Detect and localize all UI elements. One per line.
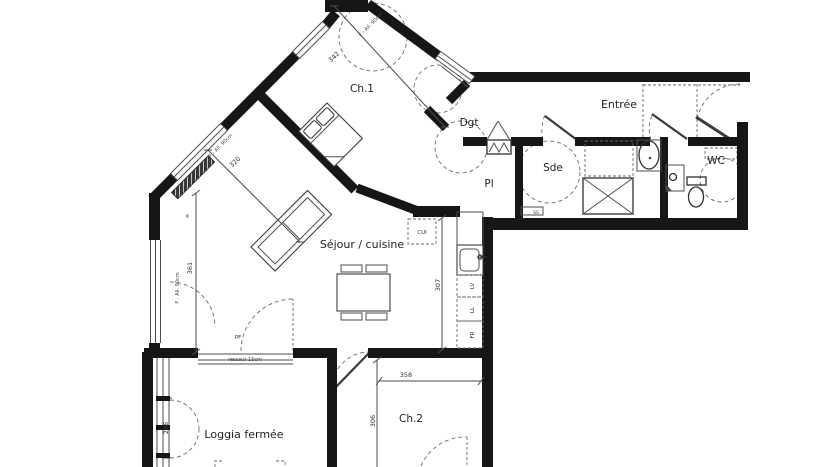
cui-label: CUI [417,230,427,236]
room-label-sejour: Séjour / cuisine [320,238,405,251]
ll-label: LL [470,306,476,313]
floor-plan-drawing: Ch.1 Entrée Dgt Pl Sde WC Séjour / cuisi… [0,0,835,467]
room-label-sde: Sde [543,162,563,174]
dim-296: 296 [162,422,170,434]
pf-label: PF [235,335,241,341]
window-sill-note-c: F - All. 90cm [175,272,181,303]
radiator-mark: ✳ [185,213,190,220]
room-label-ch1: Ch.1 [350,83,374,95]
dim-307: 307 [434,279,442,291]
ressaut-label: ressaut 15cm [228,357,262,363]
floor-plan-page: Ch.1 Entrée Dgt Pl Sde WC Séjour / cuisi… [0,0,835,467]
room-label-dgt: Dgt [460,117,479,129]
room-label-ch2: Ch.2 [399,413,423,425]
kitchen-sink [457,245,487,275]
towel-rail-label: SS [533,210,539,216]
dim-358: 358 [400,371,412,379]
lv-label: LV [470,283,476,289]
room-label-pl: Pl [484,178,493,190]
room-label-wc: WC [707,155,725,167]
room-label-entree: Entrée [601,98,637,111]
fr-label: FR [470,331,476,338]
dim-361: 361 [186,262,194,274]
room-label-loggia: Loggia fermée [204,428,283,441]
dim-306: 306 [369,415,377,427]
